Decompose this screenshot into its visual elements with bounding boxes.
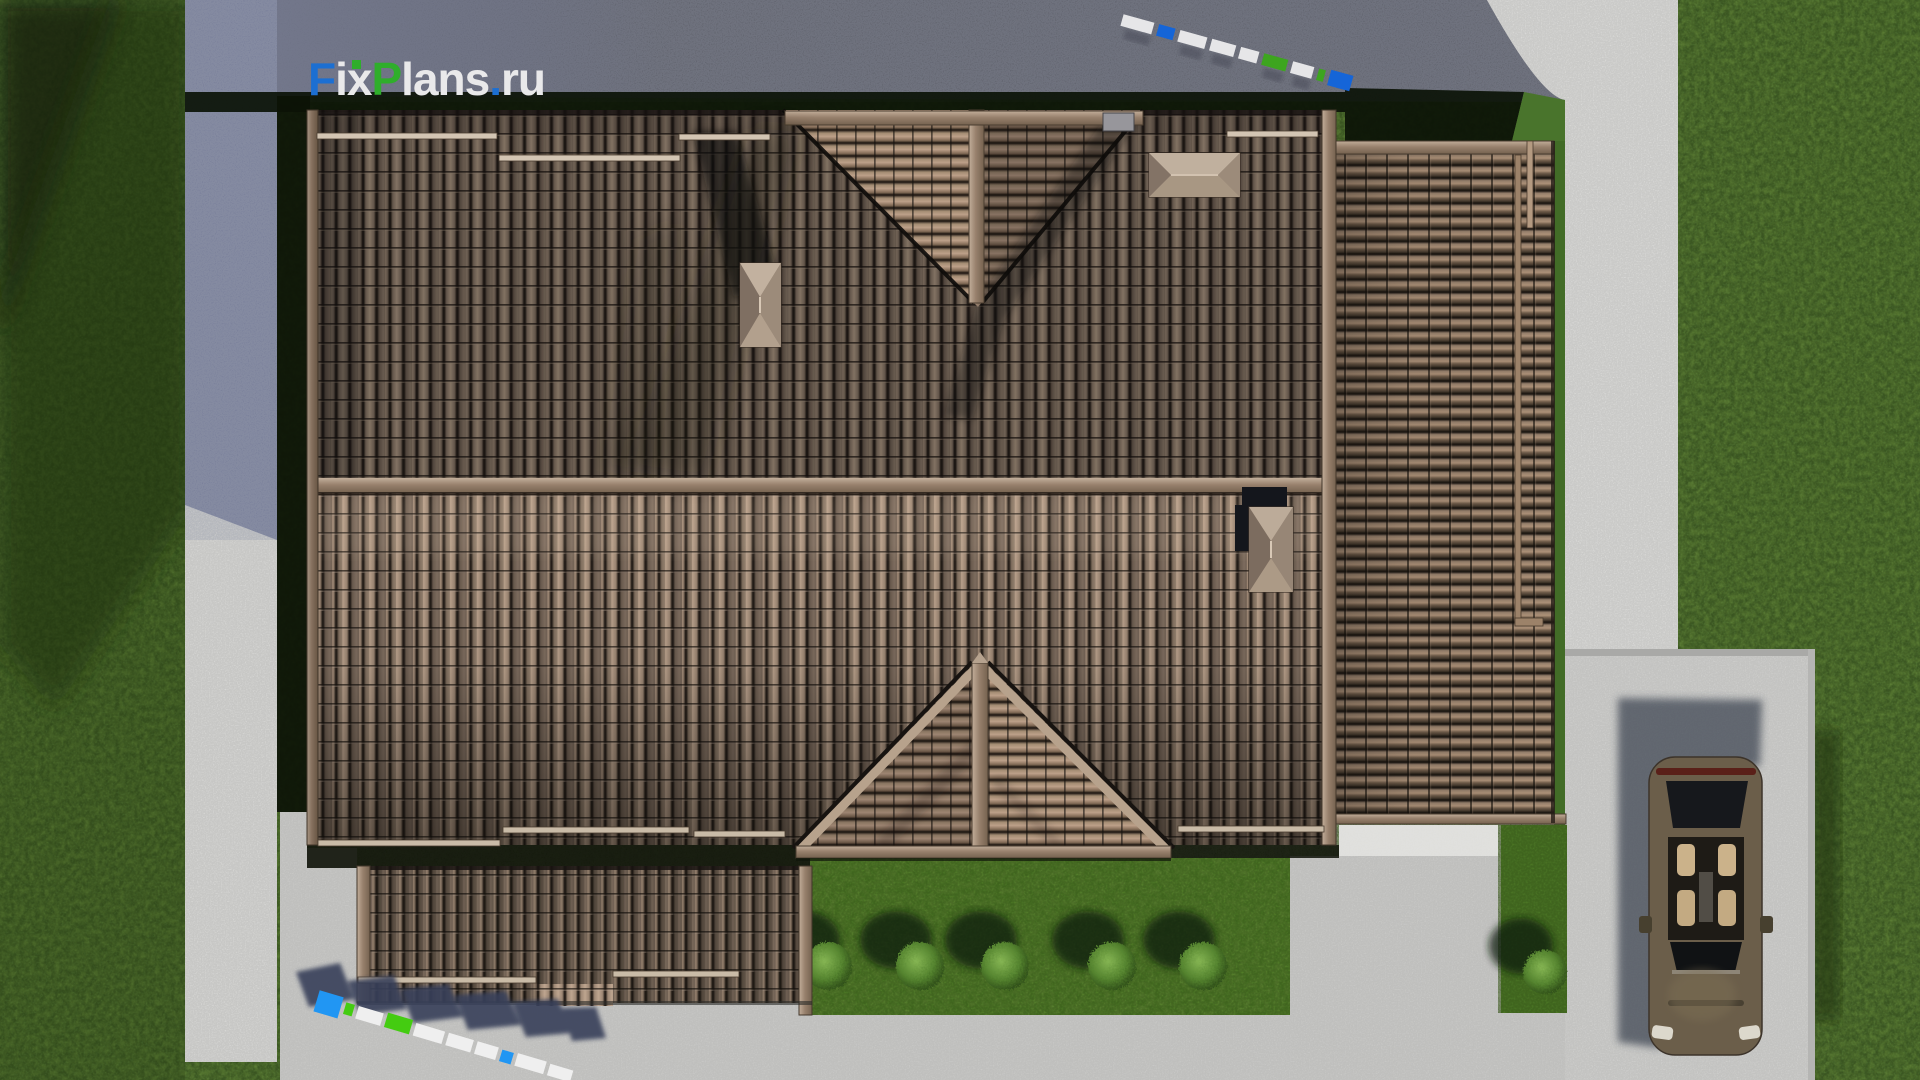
- svg-text:FixPlans.ru: FixPlans.ru: [308, 53, 545, 105]
